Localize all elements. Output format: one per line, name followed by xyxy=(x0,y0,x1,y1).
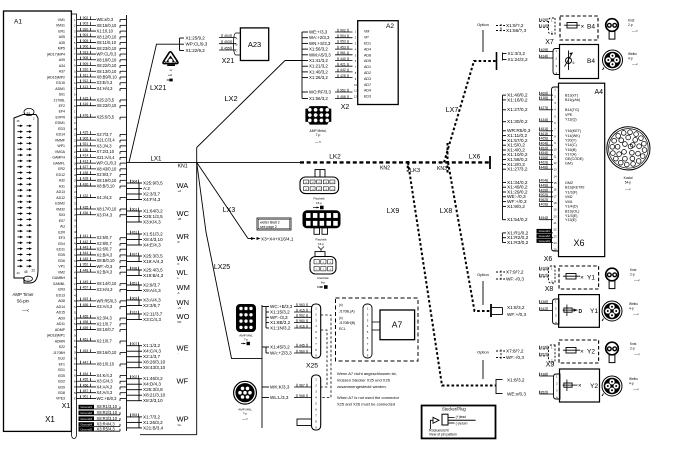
svg-text:912: 912 xyxy=(132,310,138,314)
svg-text:Y1/3(F): Y1/3(F) xyxy=(565,190,577,194)
svg-text:902: 902 xyxy=(83,16,89,20)
svg-text:953: 953 xyxy=(132,413,138,417)
svg-text:×: × xyxy=(580,275,584,282)
svg-text:VM1: VM1 xyxy=(58,18,65,22)
svg-text:453: 453 xyxy=(224,40,230,44)
svg-text:Weibu: Weibu xyxy=(629,377,638,381)
svg-text:J1708H: J1708H xyxy=(53,351,66,355)
svg-text:X8:11/0,10: X8:11/0,10 xyxy=(97,40,117,45)
svg-text:ER2: ER2 xyxy=(58,167,65,171)
svg-text:904: 904 xyxy=(83,33,89,37)
svg-text:56-pin: 56-pin xyxy=(17,299,30,304)
svg-text:902: 902 xyxy=(132,375,138,379)
svg-text:436: 436 xyxy=(83,211,89,215)
svg-text:or: or xyxy=(170,68,173,72)
svg-text:GAMFL: GAMFL xyxy=(53,161,65,165)
svg-text:X2:3/5,7: X2:3/5,7 xyxy=(143,303,161,308)
svg-text:414: 414 xyxy=(83,154,89,158)
svg-text:476: 476 xyxy=(83,113,89,117)
svg-text:ER1: ER1 xyxy=(58,29,65,33)
svg-text:4-p: 4-p xyxy=(629,307,634,311)
svg-text:A4: A4 xyxy=(594,89,603,96)
svg-text:409: 409 xyxy=(540,18,546,22)
svg-text:see page 2: see page 2 xyxy=(260,225,277,229)
svg-text:Y1/4(D): Y1/4(D) xyxy=(565,205,578,209)
svg-text:X2:7/3,7: X2:7/3,7 xyxy=(97,132,113,137)
svg-text:—<: —< xyxy=(242,417,248,421)
svg-text:908: 908 xyxy=(83,56,89,60)
svg-text:X8:19/0,10: X8:19/0,10 xyxy=(97,178,118,183)
svg-text:913: 913 xyxy=(83,50,89,54)
svg-text:ED14: ED14 xyxy=(56,133,65,137)
svg-text:LK3: LK3 xyxy=(410,168,420,174)
svg-text:905: 905 xyxy=(83,39,89,43)
svg-text:24: 24 xyxy=(553,241,557,245)
svg-text:WP:CL/0,3: WP:CL/0,3 xyxy=(97,52,118,57)
svg-text:960: 960 xyxy=(299,319,305,323)
svg-text:X3:F/4,3: X3:F/4,3 xyxy=(97,212,113,217)
svg-text:J1708L: J1708L xyxy=(54,98,66,102)
svg-text:LX2: LX2 xyxy=(224,94,237,103)
svg-text:902: 902 xyxy=(340,28,346,32)
svg-text:409: 409 xyxy=(540,203,546,207)
svg-text:LX21: LX21 xyxy=(150,85,166,92)
svg-text:456: 456 xyxy=(540,156,546,160)
svg-text:WM:A5/3,3: WM:A5/3,3 xyxy=(309,52,331,57)
svg-text:ED11: ED11 xyxy=(57,248,66,252)
svg-text:427: 427 xyxy=(540,106,546,110)
svg-text:23: 23 xyxy=(553,234,557,238)
svg-text:LX1: LX1 xyxy=(150,156,162,163)
svg-text:20: 20 xyxy=(553,214,557,218)
svg-text:455: 455 xyxy=(83,314,89,318)
svg-text:(x): (x) xyxy=(339,316,343,320)
svg-text:452: 452 xyxy=(540,146,546,150)
svg-text:449: 449 xyxy=(83,280,89,284)
svg-text:960: 960 xyxy=(299,349,305,353)
svg-text:438: 438 xyxy=(83,171,89,175)
svg-text:+S: +S xyxy=(178,306,182,310)
svg-text:X3:H/4,3: X3:H/4,3 xyxy=(97,287,114,292)
svg-text:—<: —< xyxy=(633,313,640,317)
svg-text:X2:B/4,3: X2:B/4,3 xyxy=(97,252,113,257)
svg-text:6: 6 xyxy=(573,61,575,65)
svg-text:18: 18 xyxy=(553,201,557,205)
svg-text:X2:9/3,7: X2:9/3,7 xyxy=(97,172,113,177)
svg-text:(AD16)MP2: (AD16)MP2 xyxy=(47,75,65,79)
svg-text:462: 462 xyxy=(540,161,546,165)
svg-text:X1:56/?,3: X1:56/?,3 xyxy=(506,28,526,33)
svg-text:447: 447 xyxy=(83,360,89,364)
svg-text:424: 424 xyxy=(540,54,546,58)
svg-text:—<: —< xyxy=(22,308,30,313)
svg-text:X8: X8 xyxy=(545,286,554,293)
svg-text:X4:A/4,3: X4:A/4,3 xyxy=(97,384,113,389)
svg-text:X8:14/0,10: X8:14/0,10 xyxy=(97,281,118,286)
svg-text:When A7 is not used the connec: When A7 is not used the connector xyxy=(337,395,400,400)
svg-text:X21:B/3,4: X21:B/3,4 xyxy=(143,425,164,430)
svg-text:963: 963 xyxy=(299,303,305,307)
svg-text:Ground2: Ground2 xyxy=(80,411,92,415)
svg-text:(x): (x) xyxy=(339,303,343,307)
svg-text:440: 440 xyxy=(340,57,346,61)
svg-text:442: 442 xyxy=(340,68,346,72)
svg-text:GM1: GM1 xyxy=(565,162,573,166)
svg-text:X4:F/4,3: X4:F/4,3 xyxy=(143,197,161,202)
svg-text:Ground2: Ground2 xyxy=(539,234,551,238)
svg-text:X3:E/4,3: X3:E/4,3 xyxy=(97,80,113,85)
svg-text:911: 911 xyxy=(83,73,89,77)
svg-text:ADM1: ADM1 xyxy=(55,87,65,91)
svg-text:X2:6/0,7: X2:6/0,7 xyxy=(97,247,113,252)
svg-text:EF2: EF2 xyxy=(59,104,65,108)
svg-text:ED3: ED3 xyxy=(58,127,65,131)
svg-text:X6: X6 xyxy=(544,256,553,263)
svg-text:Y16(KET): Y16(KET) xyxy=(565,129,581,133)
svg-text:ED5: ED5 xyxy=(58,253,65,257)
svg-text:Weibu: Weibu xyxy=(629,302,638,306)
svg-text:Stecker/Plug: Stecker/Plug xyxy=(442,407,466,412)
svg-text:X25: X25 xyxy=(306,363,318,370)
svg-text:Knst: Knst xyxy=(628,19,634,23)
svg-text:GAMBL: GAMBL xyxy=(53,282,65,286)
svg-text:X1:1/3,2: X1:1/3,2 xyxy=(143,343,161,348)
svg-text:A31: A31 xyxy=(59,184,65,188)
svg-text:44: 44 xyxy=(17,271,21,275)
svg-text:X25 and X26 must be connected: X25 and X26 must be connected xyxy=(337,402,395,407)
svg-text:X3+X4+X16/4,1: X3+X4+X16/4,1 xyxy=(261,236,294,241)
svg-text:X1:56/3,2: X1:56/3,2 xyxy=(309,47,328,52)
svg-text:909: 909 xyxy=(83,62,89,66)
svg-text:A34: A34 xyxy=(59,64,65,68)
svg-text:X25:3/3,8: X25:3/3,8 xyxy=(143,387,163,392)
svg-text:AU: AU xyxy=(60,225,65,229)
svg-text:X19:B/4,3: X19:B/4,3 xyxy=(143,273,164,278)
svg-text:2-p: 2-p xyxy=(628,23,633,27)
svg-text:454: 454 xyxy=(540,151,546,155)
svg-text:ER3: ER3 xyxy=(58,288,65,292)
svg-text:461: 461 xyxy=(540,132,546,136)
svg-text:X1:30/0,2: X1:30/0,2 xyxy=(507,119,528,125)
svg-text:X8:21/3,10: X8:21/3,10 xyxy=(143,393,166,398)
svg-text:X9:A/4,3: X9:A/4,3 xyxy=(143,288,161,293)
svg-text:435: 435 xyxy=(83,205,89,209)
svg-text:—<: —< xyxy=(634,353,641,357)
svg-text:B4: B4 xyxy=(587,58,595,65)
svg-text:LX8: LX8 xyxy=(440,208,453,215)
svg-text:X8:B/0,10: X8:B/0,10 xyxy=(97,258,116,263)
svg-text:—<: —< xyxy=(625,188,632,192)
svg-text:WC:+B/3,3: WC:+B/3,3 xyxy=(270,304,293,309)
svg-text:21: 21 xyxy=(553,221,557,225)
svg-text:416: 416 xyxy=(540,96,546,100)
svg-text:-: - xyxy=(178,352,179,356)
svg-text:X1:25/9,2: X1:25/9,2 xyxy=(186,36,206,41)
svg-text:A2: A2 xyxy=(386,23,394,30)
svg-text:X25:9/3,5: X25:9/3,5 xyxy=(143,181,163,186)
svg-text:432: 432 xyxy=(83,194,89,198)
svg-text:24: 24 xyxy=(27,111,31,115)
svg-text:X2:1/0,7: X2:1/0,7 xyxy=(97,321,113,326)
svg-text:WE:x/0,3: WE:x/0,3 xyxy=(97,17,114,22)
svg-text:415: 415 xyxy=(83,96,89,100)
svg-text:413: 413 xyxy=(83,85,89,89)
svg-text:Rückansicht: Rückansicht xyxy=(429,428,449,432)
svg-text:X3:A/4,3: X3:A/4,3 xyxy=(143,298,161,303)
svg-text:ECL: ECL xyxy=(339,327,346,331)
svg-text:X8:R2/3,10: X8:R2/3,10 xyxy=(97,410,118,415)
svg-text:X1:3/3,2: X1:3/3,2 xyxy=(508,51,526,56)
svg-text:458: 458 xyxy=(83,320,89,324)
svg-text:WF:-/0,3: WF:-/0,3 xyxy=(97,264,113,269)
svg-text:X1:9/0,2: X1:9/0,2 xyxy=(507,204,525,210)
svg-text:AD14: AD14 xyxy=(56,305,65,309)
svg-text:VM1: VM1 xyxy=(565,200,573,204)
svg-text:X8:3/3,10: X8:3/3,10 xyxy=(143,398,163,403)
svg-text:X1:8/3,2: X1:8/3,2 xyxy=(507,378,525,383)
svg-text:X25:3/3,5: X25:3/3,5 xyxy=(143,254,163,259)
svg-text:WK:K/3,3: WK:K/3,3 xyxy=(270,385,290,390)
svg-text:—<: —< xyxy=(315,139,322,144)
svg-text:25: 25 xyxy=(553,248,557,252)
svg-text:B11(yAb): B11(yAb) xyxy=(565,98,580,102)
svg-text:Y1: Y1 xyxy=(590,308,598,315)
svg-text:—<: —< xyxy=(632,63,639,67)
svg-text:WF:+/0,3: WF:+/0,3 xyxy=(507,312,527,317)
svg-text:436: 436 xyxy=(83,148,89,152)
svg-text:X25:4/3,5: X25:4/3,5 xyxy=(143,268,163,273)
svg-text:907: 907 xyxy=(132,342,138,346)
svg-text:415: 415 xyxy=(299,308,305,312)
svg-text:X1: X1 xyxy=(62,403,71,410)
svg-text:416: 416 xyxy=(83,102,89,106)
svg-text:445: 445 xyxy=(83,257,89,261)
svg-text:A09: A09 xyxy=(59,58,65,62)
svg-text:X1:64/3,2: X1:64/3,2 xyxy=(143,209,163,214)
svg-text:AD12: AD12 xyxy=(56,196,65,200)
svg-text:X2:1/3,7: X2:1/3,7 xyxy=(143,354,161,359)
svg-text:Y16(B): Y16(B) xyxy=(565,148,576,152)
svg-text:AD8: AD8 xyxy=(364,53,371,57)
svg-text:B4: B4 xyxy=(587,24,595,31)
svg-text:WA:+Z/3,3: WA:+Z/3,3 xyxy=(270,351,292,356)
svg-text:EU2: EU2 xyxy=(58,357,65,361)
svg-text:AD9: AD9 xyxy=(58,316,65,320)
svg-text:Wenn A7 nicht angeschlossen is: Wenn A7 nicht angeschlossen ist, xyxy=(337,371,397,376)
svg-text:448: 448 xyxy=(83,268,89,272)
svg-text:X19:A/4,3: X19:A/4,3 xyxy=(143,259,164,264)
svg-text:A1: A1 xyxy=(14,19,22,26)
svg-text:X1:41/3,2: X1:41/3,2 xyxy=(309,58,328,63)
svg-text:A:2: A:2 xyxy=(143,186,150,191)
svg-text:8-p: 8-p xyxy=(321,280,326,284)
svg-text:X3:G/4,3: X3:G/4,3 xyxy=(97,379,114,384)
svg-text:VM2: VM2 xyxy=(58,270,65,274)
svg-text:EF3: EF3 xyxy=(59,236,65,240)
svg-text:457: 457 xyxy=(83,389,89,393)
svg-text:GAMBH: GAMBH xyxy=(52,276,65,280)
svg-text:WN:+S/3,3: WN:+S/3,3 xyxy=(309,41,331,46)
svg-text:X1:22/9,2: X1:22/9,2 xyxy=(186,48,206,53)
svg-text:zusammengesteckt werden.: zusammengesteckt werden. xyxy=(337,384,387,389)
svg-text:AMP Timer: AMP Timer xyxy=(13,292,35,297)
svg-text:X1:6B/3,2: X1:6B/3,2 xyxy=(270,320,291,325)
svg-text:459: 459 xyxy=(83,326,89,330)
svg-text:VM32: VM32 xyxy=(56,207,65,211)
svg-text:×: × xyxy=(578,384,582,390)
svg-text:967: 967 xyxy=(299,383,305,387)
svg-text:AD7: AD7 xyxy=(364,83,371,87)
svg-text:416: 416 xyxy=(299,324,305,328)
svg-text:VM2: VM2 xyxy=(565,195,573,199)
svg-text:EDM1: EDM1 xyxy=(55,121,65,125)
svg-text:X25:1/3,5: X25:1/3,5 xyxy=(143,214,163,219)
svg-text:VM: VM xyxy=(364,30,369,34)
svg-text:465: 465 xyxy=(540,137,546,141)
svg-text:912: 912 xyxy=(83,79,89,83)
svg-text:ED3: ED3 xyxy=(364,95,371,99)
svg-text:WE:x/0,3: WE:x/0,3 xyxy=(507,392,526,397)
svg-text:ED6: ED6 xyxy=(58,259,65,263)
svg-text:AD4: AD4 xyxy=(364,89,371,93)
svg-text:X21:A/4,4: X21:A/4,4 xyxy=(97,155,116,160)
svg-text:ED8: ED8 xyxy=(58,391,65,395)
svg-text:Y20(Y): Y20(Y) xyxy=(565,139,576,143)
svg-text:X8:B9/0,10: X8:B9/0,10 xyxy=(97,75,118,80)
svg-text:Y2: Y2 xyxy=(590,383,598,390)
svg-text:X1:26/3,2: X1:26/3,2 xyxy=(309,75,328,80)
svg-text:X1:15/3,2: X1:15/3,2 xyxy=(270,310,290,315)
svg-text:LX7: LX7 xyxy=(446,107,459,114)
svg-text:ED4: ED4 xyxy=(58,242,65,246)
svg-text:X7:2/3,10: X7:2/3,10 xyxy=(97,149,115,154)
svg-text:434: 434 xyxy=(540,118,546,122)
svg-text:B1S(OL): B1S(OL) xyxy=(565,209,579,213)
svg-text:Ground1: Ground1 xyxy=(80,405,92,409)
svg-text:E2R: E2R xyxy=(58,230,65,234)
svg-text:54-p: 54-p xyxy=(625,181,632,185)
svg-text:15-p: 15-p xyxy=(316,201,322,205)
svg-text:X1:1N/3,2: X1:1N/3,2 xyxy=(270,326,291,331)
svg-text:X8:23/0,10: X8:23/0,10 xyxy=(97,103,118,108)
svg-text:+Z: +Z xyxy=(178,189,182,193)
svg-text:CL: CL xyxy=(178,423,182,427)
svg-text:851: 851 xyxy=(132,281,138,285)
svg-text:904: 904 xyxy=(132,179,138,183)
svg-text:J1708L(A): J1708L(A) xyxy=(339,310,355,314)
svg-text:430: 430 xyxy=(83,182,89,186)
svg-text:ED2: ED2 xyxy=(58,380,65,384)
svg-text:X8:23/0,10: X8:23/0,10 xyxy=(97,46,118,51)
svg-text:Option: Option xyxy=(477,350,489,355)
svg-text:11: 11 xyxy=(554,154,557,158)
svg-text:X3:A/4,3: X3:A/4,3 xyxy=(97,304,113,309)
svg-text:X1:7/3,2: X1:7/3,2 xyxy=(143,414,161,419)
svg-text:438: 438 xyxy=(540,372,546,376)
svg-text:455: 455 xyxy=(83,378,89,382)
svg-text:WP1: WP1 xyxy=(57,144,65,148)
svg-text:WC:+B/0,3: WC:+B/0,3 xyxy=(97,396,118,401)
svg-text:852: 852 xyxy=(540,352,546,356)
svg-text:428: 428 xyxy=(340,74,346,78)
svg-text:X2:3/3,7: X2:3/3,7 xyxy=(143,192,161,197)
svg-text:X8:R1/3,10: X8:R1/3,10 xyxy=(97,404,118,409)
svg-text:961: 961 xyxy=(340,51,346,55)
svg-text:LX3: LX3 xyxy=(223,207,236,214)
svg-text:X2:8/0,7: X2:8/0,7 xyxy=(97,241,113,246)
svg-text:B13(xT): B13(xT) xyxy=(565,94,578,98)
svg-text:445: 445 xyxy=(299,343,305,347)
svg-text:WL:L/3,3: WL:L/3,3 xyxy=(270,395,289,400)
svg-text:X2:9/3,7: X2:9/3,7 xyxy=(143,283,161,288)
svg-text:ED12: ED12 xyxy=(56,173,65,177)
svg-text:B14(TG): B14(TG) xyxy=(565,108,579,112)
svg-text:10: 10 xyxy=(553,148,557,152)
svg-text:(+)lead: (+)lead xyxy=(456,415,467,419)
svg-text:ED1: ED1 xyxy=(58,368,65,372)
svg-text:X1:27/3,2: X1:27/3,2 xyxy=(507,167,528,173)
svg-text:ED15: ED15 xyxy=(56,81,65,85)
svg-text:968: 968 xyxy=(299,394,305,398)
svg-text:442: 442 xyxy=(83,240,89,244)
svg-text:AD4: AD4 xyxy=(364,47,371,51)
svg-text:904: 904 xyxy=(340,34,346,38)
svg-text:GAMFH: GAMFH xyxy=(52,156,65,160)
svg-text:VP1: VP1 xyxy=(58,265,65,269)
svg-text:E07: E07 xyxy=(59,219,65,223)
svg-text:EDM2: EDM2 xyxy=(55,202,65,206)
svg-text:AMP Metal,: AMP Metal, xyxy=(310,129,327,133)
svg-text:ED1: ED1 xyxy=(364,42,371,46)
svg-text:22: 22 xyxy=(553,228,557,232)
svg-text:Weibu: Weibu xyxy=(628,52,637,56)
svg-text:X3:C/4,3: X3:C/4,3 xyxy=(143,317,161,322)
svg-text:VPE: VPE xyxy=(565,113,573,117)
svg-text:Knst: Knst xyxy=(630,268,636,272)
svg-text:—<: —< xyxy=(634,279,641,283)
svg-text:428: 428 xyxy=(83,177,89,181)
svg-text:Knst: Knst xyxy=(630,342,636,346)
svg-text:X1:56/3,2: X1:56/3,2 xyxy=(309,96,328,101)
svg-text:962: 962 xyxy=(540,198,546,202)
svg-text:19: 19 xyxy=(553,208,557,212)
svg-text:EVPR: EVPR xyxy=(55,115,65,119)
svg-text:Y14(C): Y14(C) xyxy=(565,143,577,147)
svg-text:AD15: AD15 xyxy=(56,311,65,315)
svg-text:WR:R5/0,3: WR:R5/0,3 xyxy=(97,298,118,303)
svg-text:15: 15 xyxy=(553,181,557,185)
svg-text:13: 13 xyxy=(553,168,557,172)
svg-text:×: × xyxy=(581,24,585,31)
svg-text:444: 444 xyxy=(83,251,89,255)
svg-text:460: 460 xyxy=(540,91,546,95)
svg-text:S22: S22 xyxy=(59,345,65,349)
svg-text:Ground3: Ground3 xyxy=(80,417,92,421)
svg-text:J1708H(B): J1708H(B) xyxy=(339,321,355,325)
svg-text:View of pin pattern: View of pin pattern xyxy=(429,433,457,437)
svg-text:453: 453 xyxy=(83,297,89,301)
svg-text:X25:2/3,5: X25:2/3,5 xyxy=(97,97,115,102)
svg-text:X1:16/0,2: X1:16/0,2 xyxy=(507,97,528,103)
svg-text:X7:9/?,2: X7:9/?,2 xyxy=(506,270,524,275)
svg-text:Y2: Y2 xyxy=(587,349,595,356)
svg-text:449: 449 xyxy=(540,184,546,188)
svg-text:X8:26/3,10: X8:26/3,10 xyxy=(143,360,166,365)
svg-text:X8:12/0,10: X8:12/0,10 xyxy=(97,34,118,39)
svg-text:X8:15/0,10: X8:15/0,10 xyxy=(97,23,118,28)
svg-text:14: 14 xyxy=(553,174,557,178)
svg-text:X1:21/3,2: X1:21/3,2 xyxy=(309,64,328,69)
